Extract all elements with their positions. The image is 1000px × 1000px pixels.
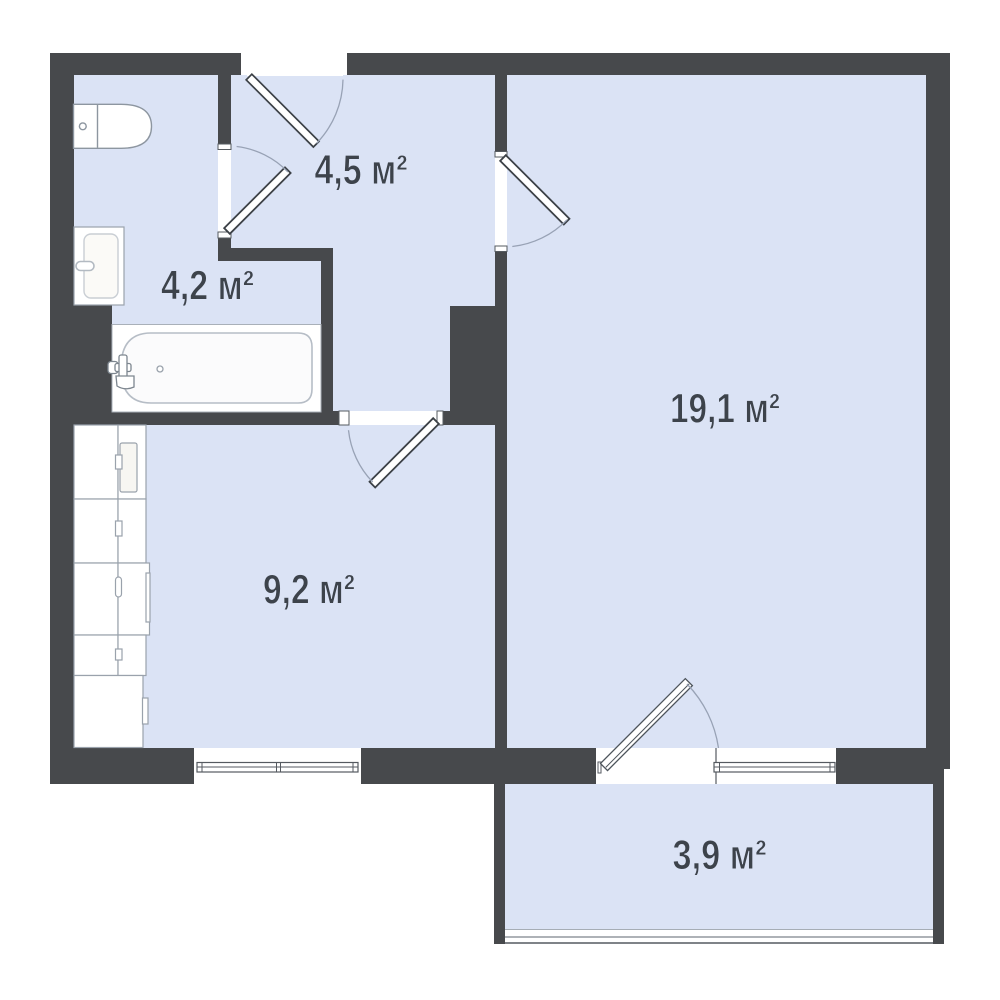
svg-text:19,1 м²: 19,1 м²	[670, 385, 780, 432]
svg-text:4,2 м²: 4,2 м²	[161, 262, 254, 309]
svg-text:9,2 м²: 9,2 м²	[263, 566, 355, 613]
svg-text:4,5 м²: 4,5 м²	[315, 146, 408, 193]
svg-text:3,9 м²: 3,9 м²	[673, 831, 767, 878]
